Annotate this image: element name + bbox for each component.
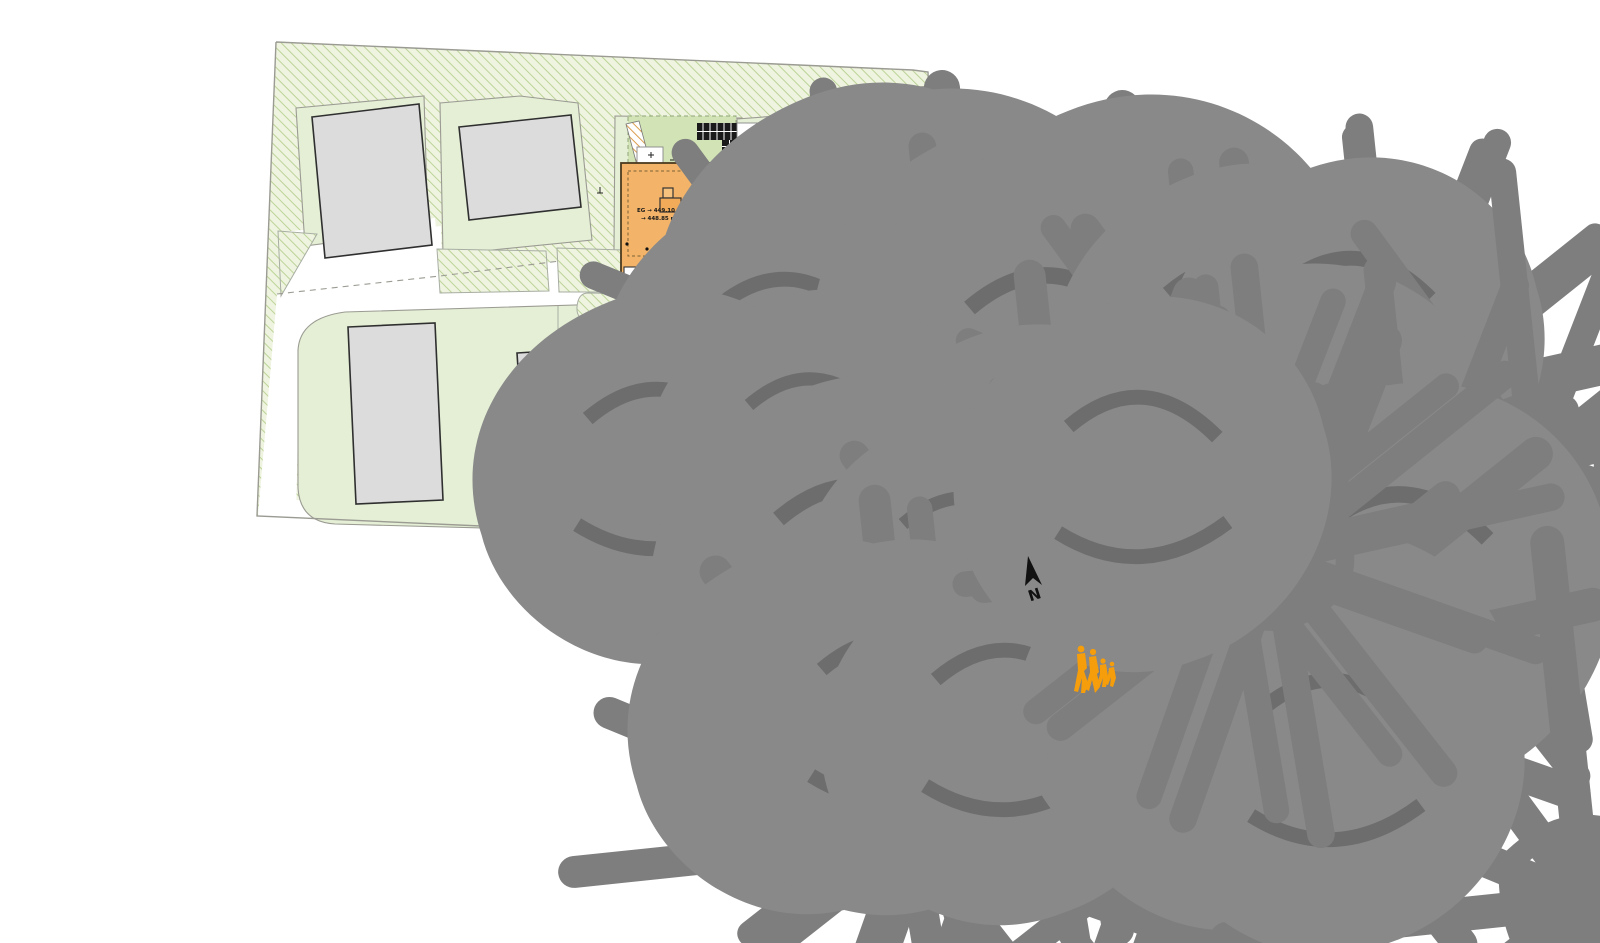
hatch-wedge-mid-1 [437,249,549,293]
site-plan-canvas: EG → 449.10 → 448.85 m ü.M. [0,0,1600,943]
building-2 [459,115,581,220]
building-1 [312,104,432,258]
roof-skylight [663,188,673,198]
building-4 [348,323,443,504]
elevation-annotation-1: EG → 449.10 [637,208,675,214]
site-plan-drawing: EG → 449.10 → 448.85 m ü.M. [0,0,1600,943]
